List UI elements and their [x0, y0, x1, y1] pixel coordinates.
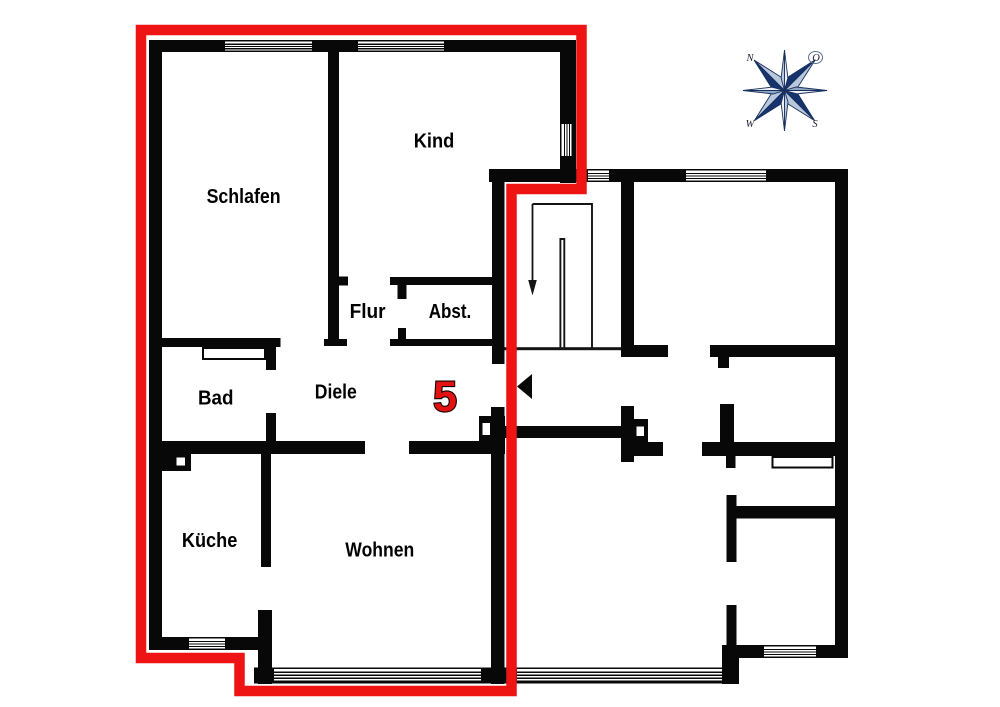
svg-text:W: W: [746, 119, 756, 130]
svg-text:5: 5: [433, 373, 457, 421]
svg-text:O: O: [812, 53, 820, 64]
svg-text:Abst.: Abst.: [429, 300, 472, 323]
svg-text:Bad: Bad: [198, 387, 234, 410]
svg-text:Diele: Diele: [315, 381, 357, 404]
svg-text:Kind: Kind: [414, 130, 455, 153]
svg-text:Küche: Küche: [182, 529, 238, 552]
svg-text:Wohnen: Wohnen: [345, 539, 414, 562]
svg-text:S: S: [812, 119, 818, 130]
svg-text:Schlafen: Schlafen: [207, 185, 281, 208]
svg-text:Flur: Flur: [350, 300, 386, 323]
svg-text:N: N: [745, 53, 754, 64]
